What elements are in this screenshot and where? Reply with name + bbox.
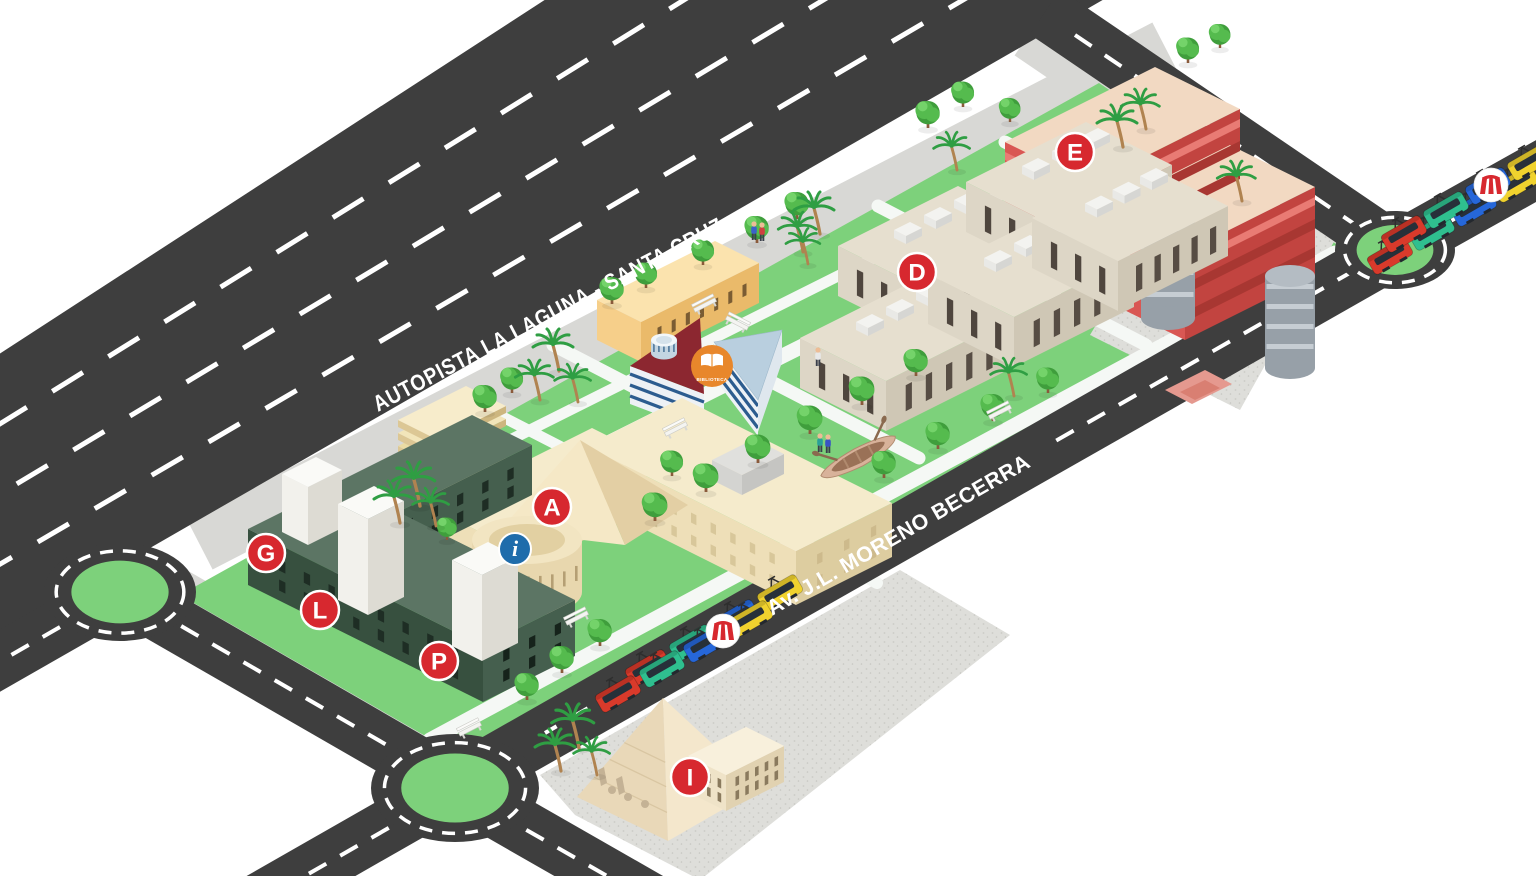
info-icon[interactable]: i — [499, 533, 531, 565]
tree — [1036, 368, 1059, 399]
tram-logo-icon — [1474, 168, 1508, 202]
svg-text:A: A — [543, 495, 560, 522]
tree — [549, 646, 573, 679]
tree — [915, 101, 939, 134]
tree — [472, 385, 496, 418]
tree — [642, 493, 668, 527]
svg-text:I: I — [687, 765, 694, 792]
campus-map-canvas: AUTOPISTA LA LAGUNA - SANTA CRUZ Av. J.L… — [0, 0, 1536, 876]
building-marker-e[interactable]: E — [1056, 133, 1094, 171]
tree — [1176, 38, 1199, 69]
svg-text:G: G — [257, 541, 276, 568]
tree — [437, 518, 457, 546]
tree — [693, 464, 719, 498]
svg-text:BIBLIOTECA: BIBLIOTECA — [696, 377, 727, 382]
roundabout-south — [371, 734, 539, 842]
building-marker-d[interactable]: D — [898, 253, 936, 291]
tree — [500, 368, 523, 399]
tree — [925, 422, 949, 455]
tree — [849, 377, 875, 411]
roundabout-west — [44, 543, 196, 641]
building-marker-g[interactable]: G — [247, 534, 285, 572]
svg-text:D: D — [908, 260, 925, 287]
building-marker-a[interactable]: A — [533, 488, 571, 526]
tree — [903, 349, 927, 382]
svg-text:E: E — [1067, 140, 1083, 167]
building-marker-l[interactable]: L — [301, 591, 339, 629]
tree — [745, 435, 771, 469]
tree — [660, 451, 683, 482]
campus-map: AUTOPISTA LA LAGUNA - SANTA CRUZ Av. J.L… — [0, 0, 1536, 876]
tree — [1209, 24, 1231, 53]
library-icon[interactable]: BIBLIOTECA — [691, 345, 733, 387]
tree — [587, 619, 611, 652]
building-marker-p[interactable]: P — [420, 642, 458, 680]
tree — [951, 82, 974, 113]
tree — [514, 673, 538, 706]
tree — [871, 451, 895, 484]
building-marker-i[interactable]: I — [671, 758, 709, 796]
svg-text:i: i — [512, 536, 519, 561]
tree — [999, 98, 1021, 127]
svg-text:L: L — [313, 598, 328, 625]
svg-text:P: P — [431, 649, 447, 676]
open-book-icon — [701, 354, 723, 367]
tram-logo-icon — [706, 614, 740, 648]
